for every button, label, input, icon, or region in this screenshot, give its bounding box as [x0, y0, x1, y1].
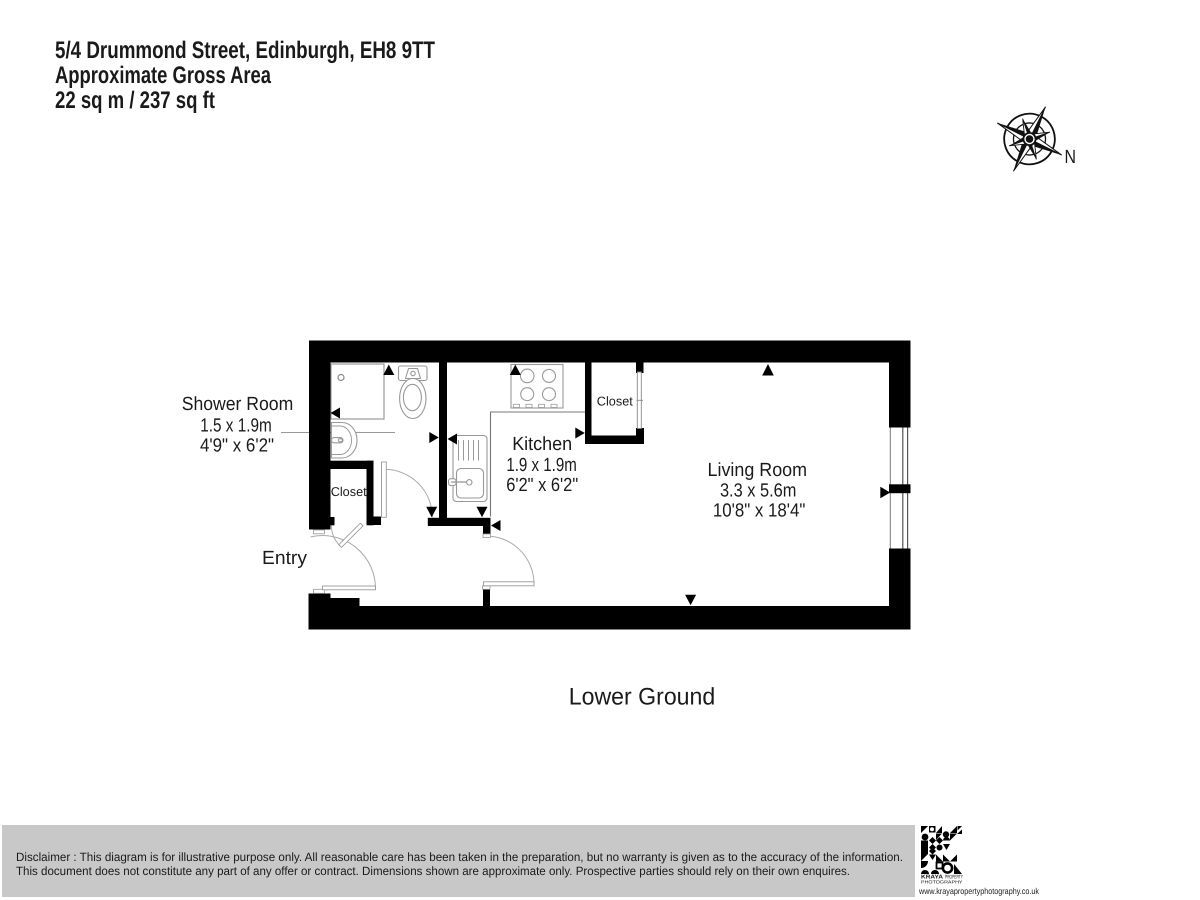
- svg-text:4'9" x 6'2": 4'9" x 6'2": [200, 435, 274, 456]
- svg-text:22 sq m / 237 sq ft: 22 sq m / 237 sq ft: [55, 87, 215, 114]
- svg-text:This document does not constit: This document does not constitute any pa…: [16, 864, 850, 878]
- svg-text:Approximate Gross Area: Approximate Gross Area: [55, 62, 271, 89]
- svg-text:Closet: Closet: [597, 393, 633, 408]
- svg-text:Shower Room: Shower Room: [182, 394, 294, 415]
- svg-text:Kitchen: Kitchen: [512, 434, 572, 455]
- svg-text:Living Room: Living Room: [708, 460, 808, 481]
- svg-text:5/4 Drummond Street, Edinburgh: 5/4 Drummond Street, Edinburgh, EH8 9TT: [55, 37, 435, 64]
- svg-text:Lower Ground: Lower Ground: [569, 684, 716, 711]
- svg-text:Disclaimer : This diagram is f: Disclaimer : This diagram is for illustr…: [16, 850, 903, 864]
- svg-text:PHOTOGRAPHY: PHOTOGRAPHY: [921, 880, 963, 885]
- svg-text:3.3 x 5.6m: 3.3 x 5.6m: [720, 480, 797, 501]
- svg-text:1.9 x 1.9m: 1.9 x 1.9m: [506, 455, 577, 476]
- svg-text:Closet: Closet: [331, 484, 367, 499]
- svg-text:Entry: Entry: [262, 548, 307, 569]
- svg-text:1.5 x 1.9m: 1.5 x 1.9m: [200, 416, 272, 437]
- svg-text:6'2" x 6'2": 6'2" x 6'2": [506, 475, 578, 496]
- svg-text:N: N: [1065, 147, 1077, 168]
- svg-text:10'8" x 18'4": 10'8" x 18'4": [713, 500, 806, 521]
- svg-text:www.krayapropertyphotography.c: www.krayapropertyphotography.co.uk: [918, 886, 1039, 896]
